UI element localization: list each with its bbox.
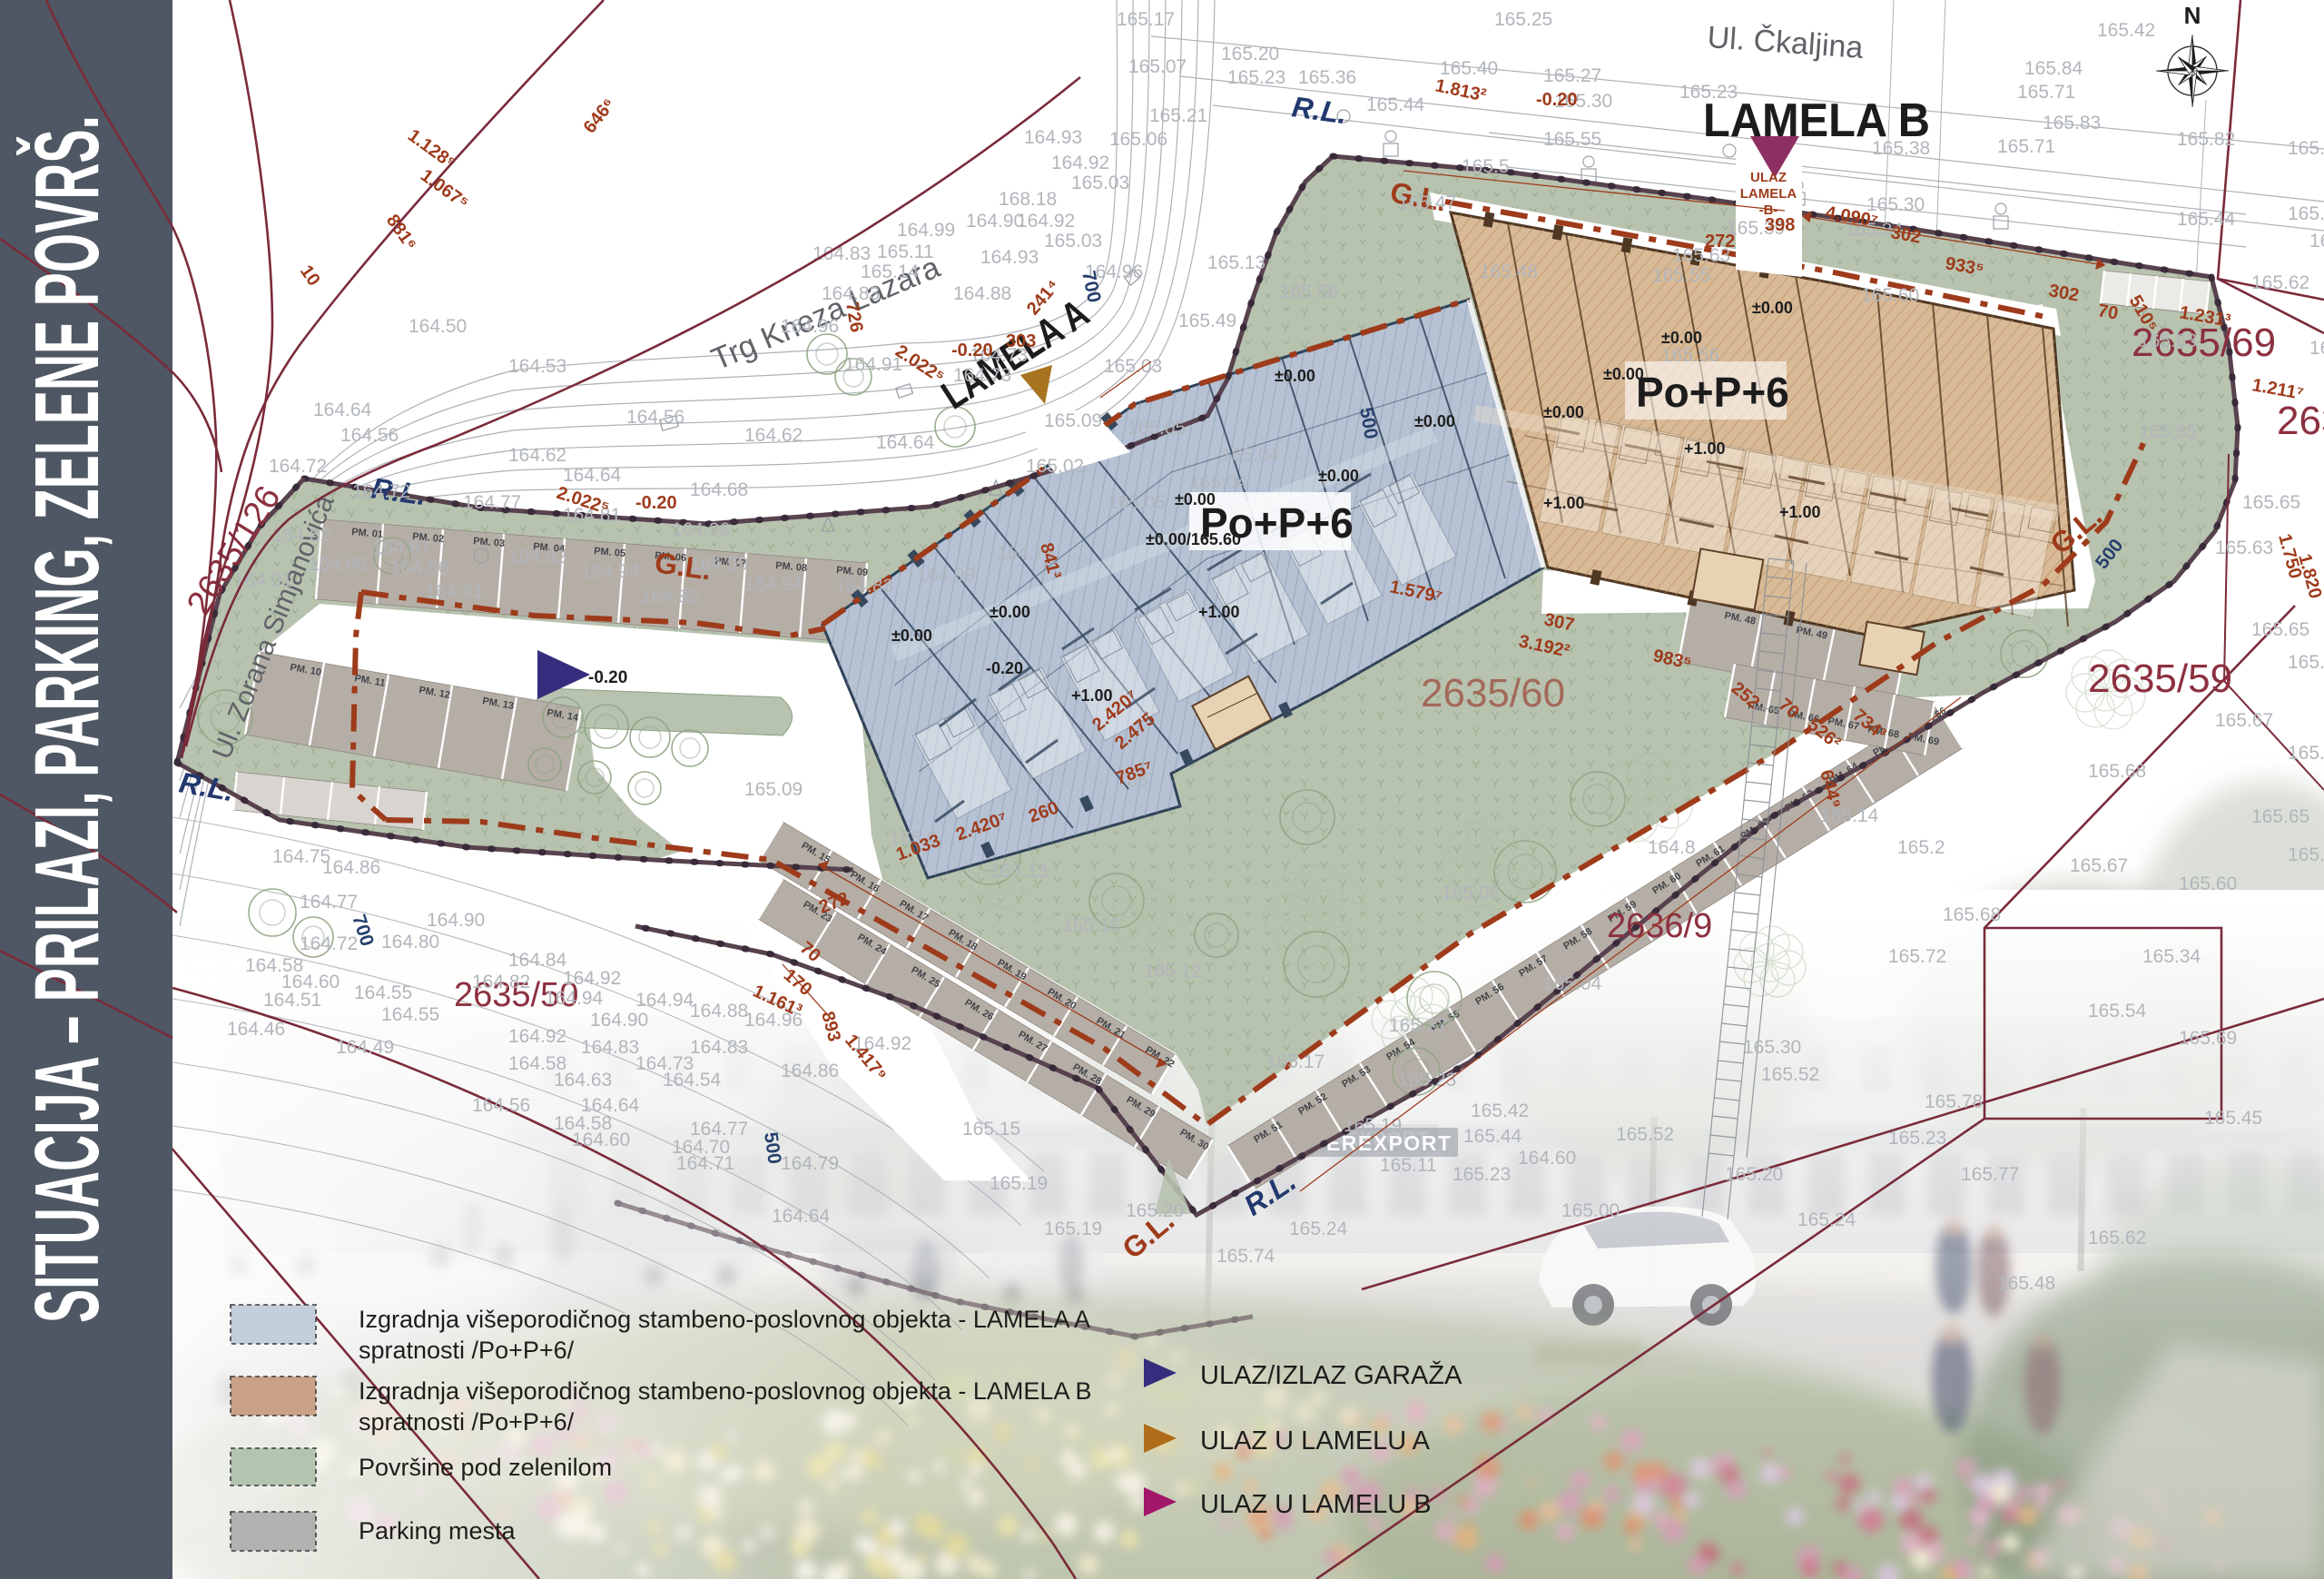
- svg-text:164.94: 164.94: [744, 574, 803, 595]
- svg-text:2636/9: 2636/9: [1607, 907, 1712, 945]
- svg-text:165.63: 165.63: [2288, 652, 2324, 673]
- svg-text:165.24: 165.24: [1797, 1209, 1856, 1230]
- svg-text:165.19: 165.19: [1344, 1115, 1402, 1136]
- svg-text:165.67: 165.67: [2215, 710, 2273, 731]
- svg-text:±0.00: ±0.00: [1661, 329, 1702, 347]
- svg-text:165.11: 165.11: [1380, 1155, 1437, 1176]
- svg-text:-0.20: -0.20: [951, 340, 993, 360]
- svg-text:164.82: 164.82: [641, 587, 699, 607]
- svg-text:165.00: 165.00: [1561, 1200, 1620, 1221]
- svg-text:165.52: 165.52: [1616, 1124, 1674, 1145]
- svg-text:165.77: 165.77: [1961, 1164, 2019, 1185]
- svg-text:ULAZ: ULAZ: [1750, 170, 1787, 185]
- svg-text:164.60: 164.60: [572, 1130, 630, 1150]
- svg-text:165.24: 165.24: [1289, 1219, 1348, 1239]
- svg-text:165.20: 165.20: [1725, 1164, 1783, 1185]
- svg-text:165.83: 165.83: [2043, 113, 2101, 133]
- svg-text:165.44: 165.44: [1463, 1126, 1522, 1147]
- svg-text:165.40: 165.40: [1440, 58, 1498, 79]
- svg-text:164.56: 164.56: [626, 407, 684, 428]
- svg-text:165.56: 165.56: [1661, 345, 1719, 366]
- svg-text:165.48: 165.48: [1997, 1273, 2055, 1294]
- svg-text:164.64: 164.64: [563, 465, 622, 486]
- svg-text:70: 70: [2096, 301, 2120, 324]
- svg-text:398: 398: [1765, 215, 1795, 235]
- svg-text:165.23: 165.23: [1888, 1128, 1946, 1149]
- svg-text:165.67: 165.67: [2070, 855, 2128, 876]
- svg-text:Parking mesta: Parking mesta: [359, 1517, 517, 1544]
- svg-text:165.72: 165.72: [1888, 946, 1946, 967]
- svg-text:164.99: 164.99: [917, 565, 975, 586]
- svg-text:±0.00: ±0.00: [1752, 299, 1793, 317]
- svg-text:164.51: 164.51: [263, 990, 321, 1011]
- svg-text:-0.20: -0.20: [588, 668, 627, 687]
- svg-text:spratnosti /Po+P+6/: spratnosti /Po+P+6/: [359, 1408, 575, 1436]
- svg-text:164.79: 164.79: [781, 1153, 839, 1174]
- svg-text:164.96: 164.96: [672, 519, 730, 540]
- svg-text:164.90: 164.90: [590, 1010, 648, 1031]
- svg-text:+1.00: +1.00: [1543, 494, 1585, 512]
- svg-text:164.86: 164.86: [309, 554, 367, 575]
- svg-text:165.42: 165.42: [1471, 1100, 1529, 1121]
- svg-text:164.83: 164.83: [812, 243, 871, 264]
- svg-text:164.86: 164.86: [390, 558, 448, 578]
- svg-text:165.23: 165.23: [1679, 82, 1738, 103]
- svg-text:164.83: 164.83: [581, 1037, 639, 1058]
- svg-text:164.82: 164.82: [472, 972, 530, 992]
- svg-text:165.63: 165.63: [2215, 538, 2273, 558]
- svg-text:Po+P+6: Po+P+6: [1636, 369, 1789, 416]
- svg-text:165.27: 165.27: [1389, 1015, 1447, 1036]
- svg-text:Izgradnja višeporodičnog stamb: Izgradnja višeporodičnog stambeno-poslov…: [359, 1306, 1090, 1333]
- svg-text:±0.00: ±0.00: [1543, 403, 1584, 421]
- svg-text:165.44: 165.44: [2177, 209, 2236, 230]
- svg-text:165.62: 165.62: [2088, 1228, 2146, 1248]
- svg-text:165.82: 165.82: [2288, 138, 2324, 159]
- svg-text:164.63: 164.63: [554, 1070, 612, 1090]
- svg-text:164.93: 164.93: [1024, 127, 1082, 148]
- svg-text:164.55: 164.55: [381, 1004, 439, 1025]
- svg-text:164.92: 164.92: [508, 1026, 566, 1047]
- svg-text:165.82: 165.82: [2177, 129, 2235, 150]
- svg-text:164.46: 164.46: [227, 1019, 285, 1040]
- svg-text:165.44: 165.44: [1366, 94, 1425, 115]
- svg-text:165.60: 165.60: [2179, 873, 2237, 894]
- svg-text:165.78: 165.78: [1925, 1091, 1983, 1112]
- svg-text:165.02: 165.02: [1026, 456, 1084, 477]
- svg-text:164.60: 164.60: [1518, 1148, 1576, 1169]
- svg-text:165.36: 165.36: [1298, 67, 1356, 88]
- svg-text:164.84: 164.84: [508, 950, 567, 971]
- svg-text:164.99: 164.99: [690, 554, 748, 575]
- svg-text:500: 500: [760, 1130, 785, 1165]
- svg-text:164.88: 164.88: [690, 1001, 748, 1021]
- svg-text:165.07: 165.07: [1128, 56, 1187, 77]
- svg-text:164.77: 164.77: [300, 892, 358, 913]
- svg-text:164.8: 164.8: [1648, 837, 1696, 858]
- svg-text:165.25: 165.25: [1494, 9, 1552, 30]
- svg-text:165.15: 165.15: [962, 1119, 1020, 1140]
- svg-text:±0.00: ±0.00: [990, 603, 1030, 621]
- svg-text:165.04: 165.04: [1221, 445, 1280, 466]
- svg-text:N: N: [2184, 2, 2201, 29]
- svg-text:165.04: 165.04: [1543, 973, 1602, 994]
- svg-text:164.86: 164.86: [781, 1061, 839, 1081]
- svg-text:272: 272: [1705, 232, 1735, 252]
- svg-text:165.17: 165.17: [1266, 1051, 1324, 1072]
- svg-text:164.88: 164.88: [953, 283, 1011, 304]
- svg-text:±0.00: ±0.00: [1275, 367, 1315, 385]
- svg-text:165.30: 165.30: [1743, 1037, 1801, 1058]
- svg-text:165.65: 165.65: [2242, 492, 2300, 513]
- svg-text:165.06: 165.06: [1109, 129, 1167, 150]
- svg-text:-0.20: -0.20: [1536, 90, 1578, 110]
- svg-text:164.93: 164.93: [980, 247, 1039, 268]
- svg-text:Površine pod zelenilom: Površine pod zelenilom: [359, 1454, 612, 1481]
- svg-text:165.45: 165.45: [2204, 1108, 2262, 1129]
- svg-text:Izgradnja višeporodičnog stamb: Izgradnja višeporodičnog stambeno-poslov…: [359, 1377, 1091, 1405]
- svg-text:+1.00: +1.00: [1779, 503, 1821, 521]
- svg-text:2635/59: 2635/59: [2088, 656, 2232, 701]
- svg-text:165.03: 165.03: [1044, 231, 1102, 252]
- svg-text:164.86: 164.86: [322, 857, 380, 878]
- svg-text:±0.00: ±0.00: [1414, 412, 1455, 430]
- svg-text:165.56: 165.56: [1280, 281, 1338, 302]
- svg-text:165.84: 165.84: [2024, 58, 2083, 79]
- svg-text:164.64: 164.64: [876, 432, 935, 453]
- svg-text:165.60: 165.60: [2288, 743, 2324, 764]
- svg-text:165.47: 165.47: [1398, 192, 1456, 213]
- svg-text:2635/6: 2635/6: [2277, 399, 2324, 443]
- svg-text:165.14: 165.14: [861, 262, 920, 282]
- svg-text:164.53: 164.53: [508, 356, 566, 377]
- svg-text:164.73: 164.73: [953, 365, 1011, 386]
- svg-text:165.16: 165.16: [1062, 915, 1120, 936]
- svg-text:164.96: 164.96: [781, 316, 839, 337]
- svg-text:164.49: 164.49: [336, 1037, 394, 1058]
- svg-text:164.50: 164.50: [409, 316, 467, 337]
- svg-text:164.92: 164.92: [508, 547, 566, 567]
- svg-text:164.72: 164.72: [300, 933, 358, 954]
- svg-text:165.63: 165.63: [2288, 844, 2324, 865]
- svg-text:SITUACIJA – PRILAZI, PARKING,: SITUACIJA – PRILAZI, PARKING, ZELENE POV…: [16, 115, 118, 1323]
- svg-text:165.11: 165.11: [877, 242, 934, 262]
- svg-text:164.90: 164.90: [427, 910, 485, 931]
- svg-text:±0.00: ±0.00: [1603, 365, 1644, 383]
- svg-text:164.92: 164.92: [563, 968, 621, 989]
- svg-text:168.18: 168.18: [999, 189, 1057, 210]
- svg-text:165.21: 165.21: [1149, 105, 1207, 126]
- svg-text:165.08: 165.08: [1442, 883, 1500, 903]
- svg-text:165.65: 165.65: [2139, 421, 2197, 442]
- svg-text:164.72: 164.72: [269, 456, 327, 477]
- svg-text:165.52: 165.52: [1761, 1064, 1819, 1085]
- svg-text:164.55: 164.55: [354, 982, 412, 1003]
- svg-text:165.54: 165.54: [2088, 1001, 2147, 1021]
- svg-text:165.6: 165.6: [2309, 338, 2324, 359]
- svg-text:ULAZ U LAMELU A: ULAZ U LAMELU A: [1200, 1426, 1431, 1456]
- svg-text:±0.00: ±0.00: [1175, 490, 1216, 508]
- svg-text:164.87: 164.87: [372, 538, 430, 558]
- svg-text:165.49: 165.49: [1178, 311, 1236, 331]
- svg-text:165.60: 165.60: [1861, 285, 1919, 306]
- svg-text:164.64: 164.64: [313, 400, 372, 420]
- svg-text:165.20: 165.20: [1126, 1200, 1184, 1221]
- svg-text:165.19: 165.19: [1044, 1219, 1102, 1239]
- svg-text:ULAZ/IZLAZ GARAŽA: ULAZ/IZLAZ GARAŽA: [1200, 1360, 1462, 1390]
- svg-text:spratnosti /Po+P+6/: spratnosti /Po+P+6/: [359, 1337, 575, 1364]
- svg-text:164.80: 164.80: [381, 932, 439, 952]
- svg-text:±0.00/165.60: ±0.00/165.60: [1146, 530, 1241, 548]
- svg-text:164.92: 164.92: [1017, 211, 1075, 232]
- svg-text:165.19: 165.19: [990, 1173, 1048, 1194]
- svg-text:165.71: 165.71: [2017, 82, 2075, 103]
- svg-text:2635/60: 2635/60: [1421, 671, 1565, 715]
- svg-text:165.65: 165.65: [2251, 619, 2309, 640]
- svg-text:165.64: 165.64: [2288, 203, 2324, 224]
- svg-text:165.8: 165.8: [2309, 231, 2324, 252]
- svg-text:164.99: 164.99: [897, 220, 955, 241]
- svg-text:303: 303: [1006, 331, 1036, 351]
- svg-text:±0.00: ±0.00: [891, 627, 932, 645]
- svg-text:165.23: 165.23: [1452, 1164, 1511, 1185]
- svg-text:164.68: 164.68: [690, 479, 748, 500]
- svg-text:165.27: 165.27: [1543, 65, 1601, 86]
- svg-text:164.94: 164.94: [581, 561, 640, 582]
- svg-text:164.56: 164.56: [472, 1095, 530, 1116]
- svg-text:165.69: 165.69: [2179, 1028, 2237, 1049]
- svg-text:164.91: 164.91: [425, 581, 483, 602]
- svg-text:165.03: 165.03: [1071, 173, 1129, 193]
- svg-text:164.64: 164.64: [772, 1206, 831, 1227]
- svg-text:ULAZ U LAMELU B: ULAZ U LAMELU B: [1200, 1490, 1432, 1519]
- svg-text:165.05: 165.05: [1128, 418, 1186, 439]
- svg-text:164.94: 164.94: [545, 988, 604, 1009]
- svg-text:+1.00: +1.00: [1071, 686, 1113, 705]
- svg-text:165.65: 165.65: [2251, 806, 2309, 827]
- svg-text:165.09: 165.09: [744, 779, 803, 800]
- svg-text:165.05: 165.05: [1108, 492, 1166, 513]
- svg-text:+1.00: +1.00: [1684, 439, 1726, 458]
- svg-text:165.5: 165.5: [1462, 156, 1510, 177]
- svg-text:165.71: 165.71: [1997, 136, 2055, 157]
- svg-text:165.48: 165.48: [1480, 262, 1538, 282]
- svg-text:164.77: 164.77: [463, 492, 521, 513]
- svg-text:164.62: 164.62: [744, 425, 803, 446]
- svg-text:164.62: 164.62: [508, 445, 566, 466]
- svg-text:165.55: 165.55: [1543, 129, 1601, 150]
- svg-text:165.34: 165.34: [2142, 946, 2201, 967]
- svg-text:165.68: 165.68: [1943, 904, 2001, 925]
- svg-text:-0.20: -0.20: [986, 659, 1023, 677]
- svg-text:164.56: 164.56: [340, 425, 399, 446]
- svg-text:164.83: 164.83: [835, 576, 893, 597]
- svg-text:165.2: 165.2: [1897, 837, 1945, 858]
- svg-text:164.83: 164.83: [690, 1037, 748, 1058]
- svg-text:-0.20: -0.20: [635, 493, 677, 513]
- svg-text:165.62: 165.62: [2251, 272, 2309, 293]
- svg-text:165.12: 165.12: [1144, 961, 1202, 982]
- svg-text:164.94: 164.94: [635, 990, 694, 1011]
- svg-text:165.13: 165.13: [1207, 252, 1265, 273]
- svg-text:LAMELA: LAMELA: [1740, 186, 1797, 202]
- svg-text:165.13: 165.13: [990, 861, 1048, 882]
- svg-text:165.74: 165.74: [1216, 1246, 1275, 1267]
- svg-text:165.38: 165.38: [1872, 138, 1930, 159]
- svg-text:±0.00: ±0.00: [1318, 467, 1359, 485]
- svg-text:165.23: 165.23: [1398, 1070, 1456, 1090]
- svg-text:165.09: 165.09: [1044, 410, 1102, 431]
- svg-text:164.72: 164.72: [352, 481, 410, 502]
- svg-text:165.68: 165.68: [2088, 761, 2146, 782]
- svg-text:164.54: 164.54: [663, 1070, 722, 1090]
- svg-text:164.71: 164.71: [676, 1153, 734, 1174]
- svg-text:165.42: 165.42: [2097, 20, 2155, 41]
- svg-text:164.92: 164.92: [1051, 153, 1109, 173]
- svg-text:165.23: 165.23: [1227, 67, 1285, 88]
- svg-text:164.90: 164.90: [966, 211, 1024, 232]
- svg-text:165.55: 165.55: [1652, 265, 1710, 286]
- svg-text:164.83: 164.83: [822, 283, 880, 304]
- svg-text:165.20: 165.20: [1221, 44, 1279, 64]
- svg-text:+1.00: +1.00: [1198, 603, 1240, 621]
- svg-text:165.17: 165.17: [1117, 9, 1175, 30]
